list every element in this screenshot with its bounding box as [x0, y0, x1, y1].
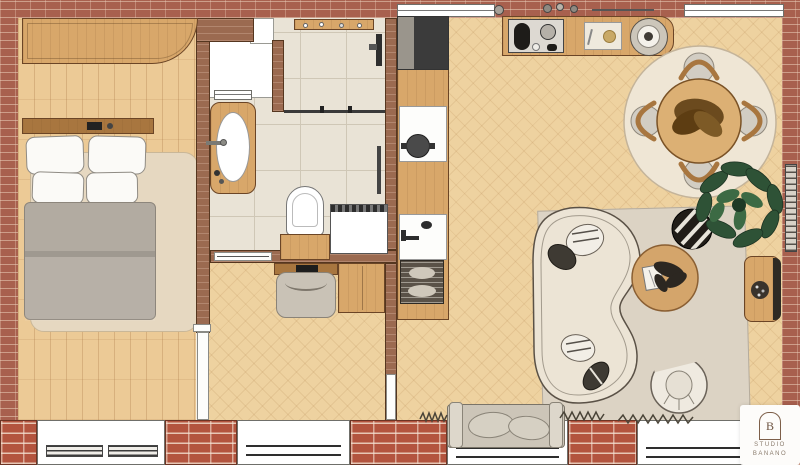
studio-logo-monogram: B: [759, 412, 781, 440]
curtain-squiggle: [560, 412, 604, 420]
curtain-squiggle: [420, 413, 447, 421]
furniture-layer: [0, 0, 800, 465]
coffee-table: [632, 245, 698, 311]
studio-logo-card: B STUDIO BANANO: [740, 405, 800, 465]
plant-center: [732, 198, 746, 212]
ribbed-armchair: [651, 344, 707, 413]
floor-plan: B STUDIO BANANO: [0, 0, 800, 465]
studio-logo-line2: BANANO: [753, 451, 787, 458]
curtain-squiggle: [618, 415, 693, 423]
sideboard-decor: [751, 281, 769, 299]
studio-logo-line1: STUDIO: [754, 442, 786, 449]
